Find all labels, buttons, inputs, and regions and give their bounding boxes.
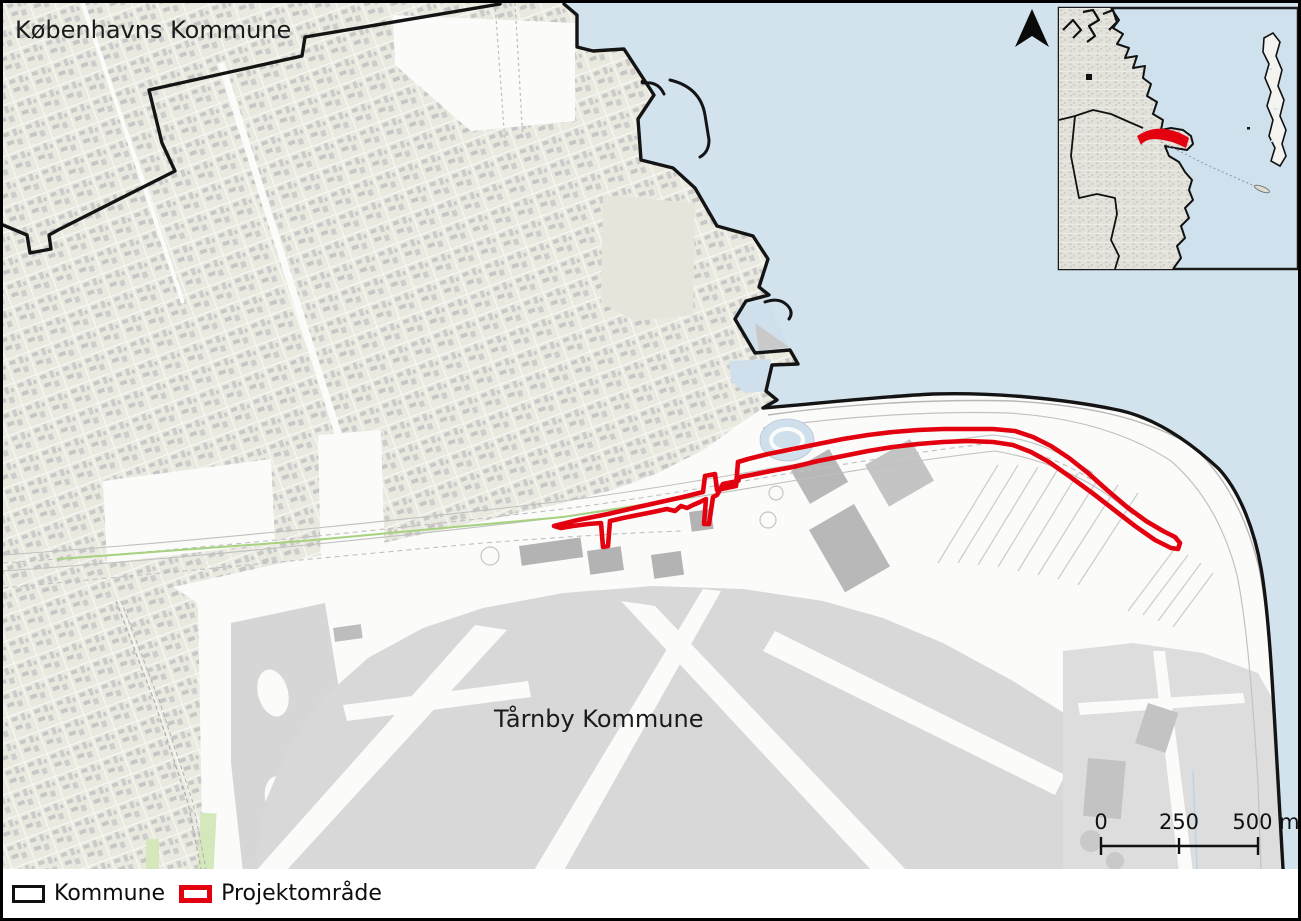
map-figure: Københavns Kommune Tårnby Kommune 0 250 … bbox=[0, 0, 1301, 921]
scale-label-0: 0 bbox=[1094, 810, 1107, 834]
kommune-label: Kommune bbox=[54, 881, 165, 906]
projektomraade-swatch bbox=[179, 885, 212, 903]
label-kobenhavns-kommune: Københavns Kommune bbox=[15, 16, 291, 44]
green-area bbox=[146, 839, 159, 869]
projektomraade-label: Projektområde bbox=[221, 881, 382, 906]
map-canvas: Københavns Kommune Tårnby Kommune 0 250 … bbox=[3, 3, 1298, 869]
kommune-swatch bbox=[12, 885, 45, 903]
inset-map bbox=[1059, 8, 1298, 269]
scale-label-500m: 500 m bbox=[1232, 810, 1298, 834]
main-map: Københavns Kommune Tårnby Kommune 0 250 … bbox=[3, 3, 1298, 869]
label-taarnby-kommune: Tårnby Kommune bbox=[493, 704, 703, 733]
scale-label-250: 250 bbox=[1159, 810, 1199, 834]
legend: Kommune Projektområde bbox=[3, 869, 1298, 918]
